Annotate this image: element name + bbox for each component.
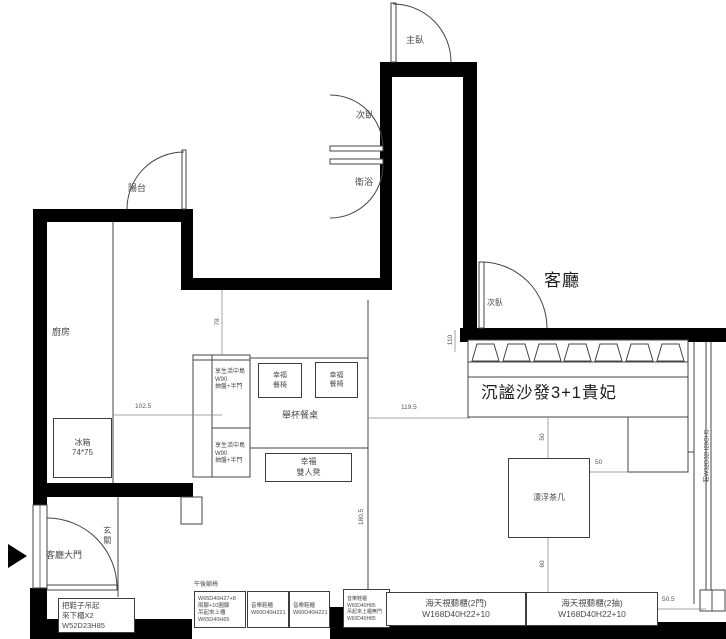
island-upper-note: 享生活中島W90抽盤+半門 [212, 364, 250, 396]
dim-tv-wall-gap: 50.5 [662, 597, 675, 604]
island-lower-note: 享生活中島W90抽盤+半門 [212, 438, 250, 470]
note-right-shoe-cabinet: 鞋W32D32H20GH5 [705, 430, 712, 483]
double-bench: 幸福雙人凳 [265, 453, 352, 482]
dim-dining-length: 180.5 [359, 509, 366, 525]
bedroom3-door-arc [481, 262, 547, 328]
box-line: W168D40H22+10 [558, 609, 626, 620]
box-line: W52D23H85 [62, 621, 105, 631]
sofa-chaise [628, 417, 688, 472]
entrance-arrow-icon [8, 544, 27, 568]
box-line: 音樂鞋櫃 [293, 603, 315, 610]
box-line: W65D40H27+8 [198, 596, 236, 603]
box-line: W168D40H22+10 [422, 609, 490, 620]
fridge: 冰箱74*75 [53, 418, 112, 478]
music-shoe-cabinet-2: 音樂鞋櫃W60D40H221 [289, 591, 330, 628]
box-line: 來下櫃X2 [62, 611, 94, 621]
dim-island-gap: 78 [215, 318, 222, 325]
box-line: 雙人凳 [297, 468, 321, 478]
box-line: 餐椅 [273, 381, 287, 390]
room-label-bathroom: 衛浴 [355, 178, 373, 188]
box-line: 冰箱 [75, 438, 91, 448]
master-door-leaf [391, 3, 396, 62]
balcony-door-arc [127, 152, 184, 209]
tv-cabinet-2drawer: 海天視聽櫃(2抽)W168D40H22+10 [526, 592, 658, 626]
balcony-door-leaf [182, 150, 186, 209]
dim-table-bottom-gap: 60 [540, 560, 547, 567]
music-shoe-cabinet-1: 音樂鞋櫃W60D40H221 [247, 591, 289, 628]
box-line: W60D40H221 [293, 610, 328, 617]
room-label-living-room: 客廳 [544, 272, 580, 291]
box-line: 把鞋子吊起 [62, 601, 100, 611]
note-bench-header: 午後躺椅 [194, 582, 218, 589]
dining-chair-1: 幸福餐椅 [258, 363, 302, 398]
room-label-kitchen: 廚房 [52, 328, 70, 338]
bench-cabinet-note: W65D40H27+8兩腳+10圓腳吊起來上櫃W65D40H65 [194, 591, 246, 628]
box-line: 74*75 [72, 448, 93, 458]
box-line: 享生活中島 [215, 443, 245, 451]
dim-kitchen-width: 102.5 [135, 404, 151, 411]
dining-chair-2: 幸福餐椅 [315, 362, 358, 398]
box-line: 幸福 [273, 371, 287, 380]
box-line: 抽盤+半門 [215, 458, 243, 466]
box-line: 幸福 [330, 371, 344, 380]
master-door-arc [393, 4, 451, 62]
box-line: W60D40H221 [251, 610, 286, 617]
box-line: W65D40H65 [198, 617, 230, 624]
sofa-label: 沉謐沙發3+1貴妃 [481, 384, 617, 402]
room-label-bedroom-2: 次臥 [356, 111, 374, 121]
floor-plan: 陽台廚房主臥次臥衛浴次臥客廳玄關客廳大門舉杯餐桌沉謐沙發3+1貴妃午後躺椅鞋W3… [0, 0, 726, 639]
box-line: 兩腳+10圓腳 [198, 603, 229, 610]
box-line: 餐椅 [330, 380, 344, 389]
room-label-master-bedroom: 主臥 [406, 36, 424, 46]
box-line: 漂浮茶几 [533, 493, 565, 503]
box-line: 幸福 [301, 457, 317, 467]
box-line: 海天視聽櫃(2抽) [561, 598, 622, 609]
door-label-main-entrance: 客廳大門 [46, 551, 82, 561]
bedroom3-door-leaf [479, 262, 484, 328]
room-label-balcony: 陽台 [128, 184, 146, 194]
box-line: W60D40H85 [347, 616, 376, 623]
dim-sofa-table-gap: 50 [540, 433, 547, 440]
bathroom-door-arc [330, 165, 383, 218]
dim-corridor: 110 [448, 335, 455, 345]
dim-table-chaise-gap: 50 [595, 460, 602, 467]
box-line: 享生活中島 [215, 369, 245, 377]
box-line: 吊起來上櫃 [198, 610, 226, 617]
dim-dining-width: 119.5 [401, 405, 417, 412]
box-line: 海天視聽櫃(2門) [425, 598, 486, 609]
table-label-dining: 舉杯餐桌 [282, 411, 318, 421]
music-shoe-cabinet-3: 音樂鞋櫃W60D40H85吊起來上櫃無門W60D40H85 [343, 589, 390, 628]
tv-cabinet-2door: 海天視聽櫃(2門)W168D40H22+10 [386, 592, 526, 626]
box-line: 抽盤+半門 [215, 384, 243, 392]
bedroom2-door-arc [330, 95, 383, 148]
entrance-door-leaf [47, 585, 117, 590]
room-label-bedroom-3: 次臥 [487, 299, 503, 308]
tea-table: 漂浮茶几 [508, 458, 590, 538]
box-line: 音樂鞋櫃 [251, 603, 273, 610]
shoe-hang-cabinet-note: 把鞋子吊起來下櫃X2W52D23H85 [58, 598, 135, 633]
sofa [468, 340, 688, 472]
room-label-foyer: 玄關 [102, 526, 111, 546]
